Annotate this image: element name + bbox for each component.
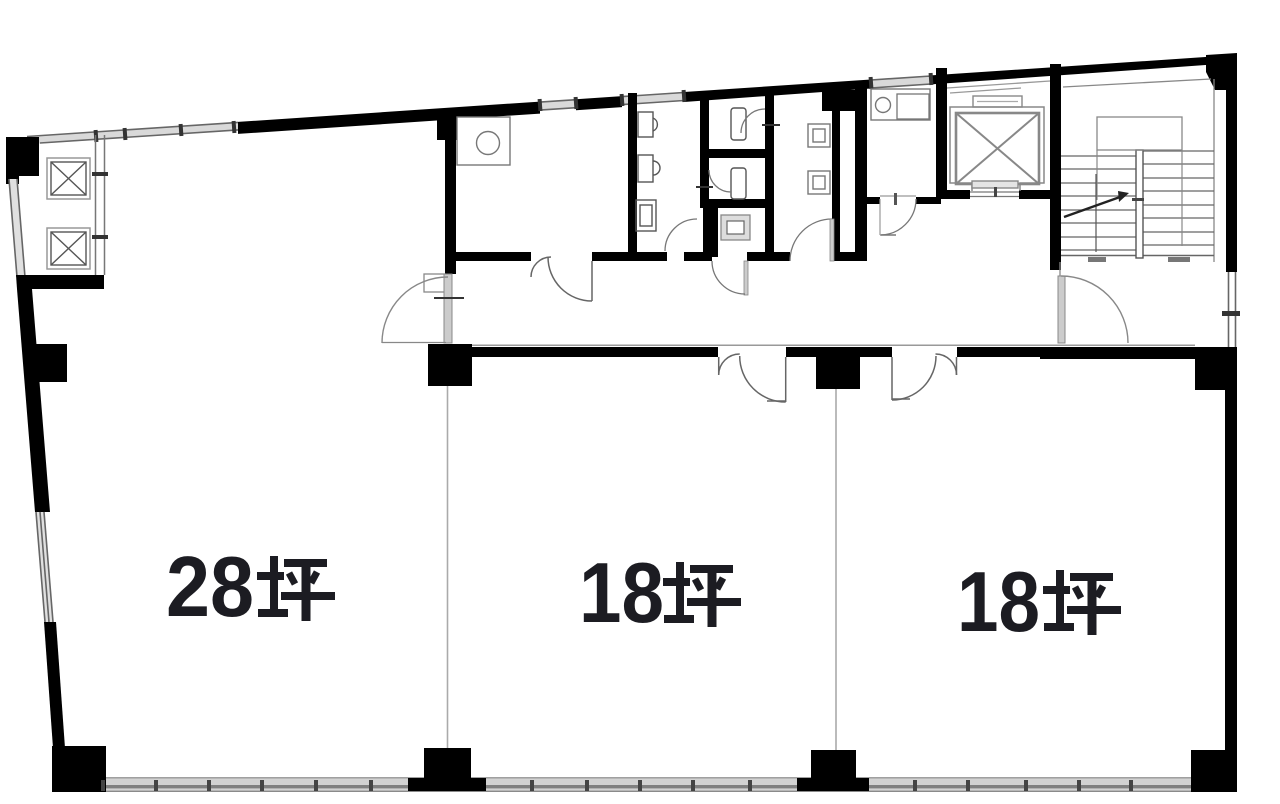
- svg-text:18: 18: [957, 555, 1040, 650]
- svg-text:18: 18: [579, 546, 664, 641]
- svg-text:28: 28: [166, 540, 254, 635]
